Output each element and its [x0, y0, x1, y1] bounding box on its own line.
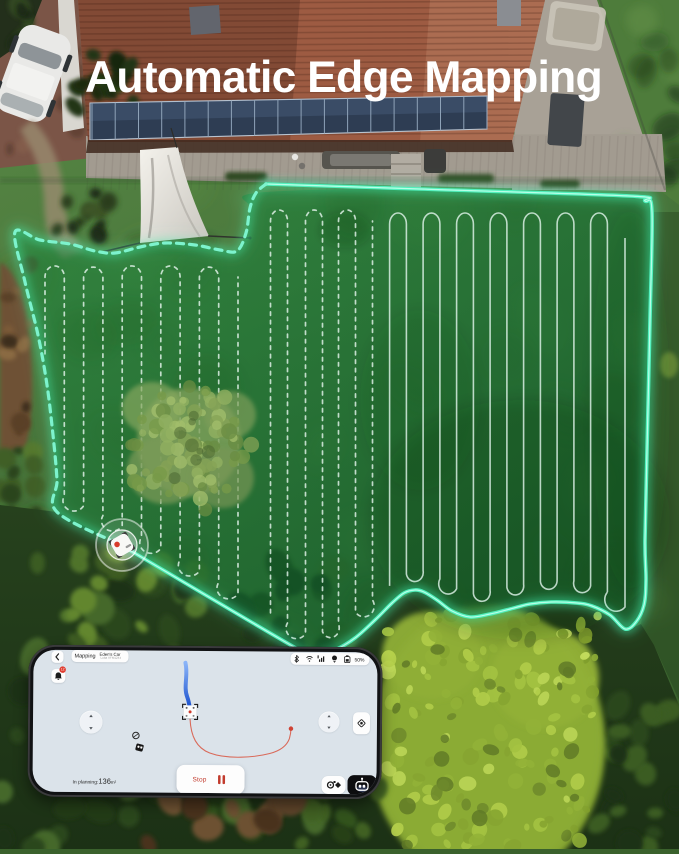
svg-text:50%: 50% [354, 657, 365, 663]
